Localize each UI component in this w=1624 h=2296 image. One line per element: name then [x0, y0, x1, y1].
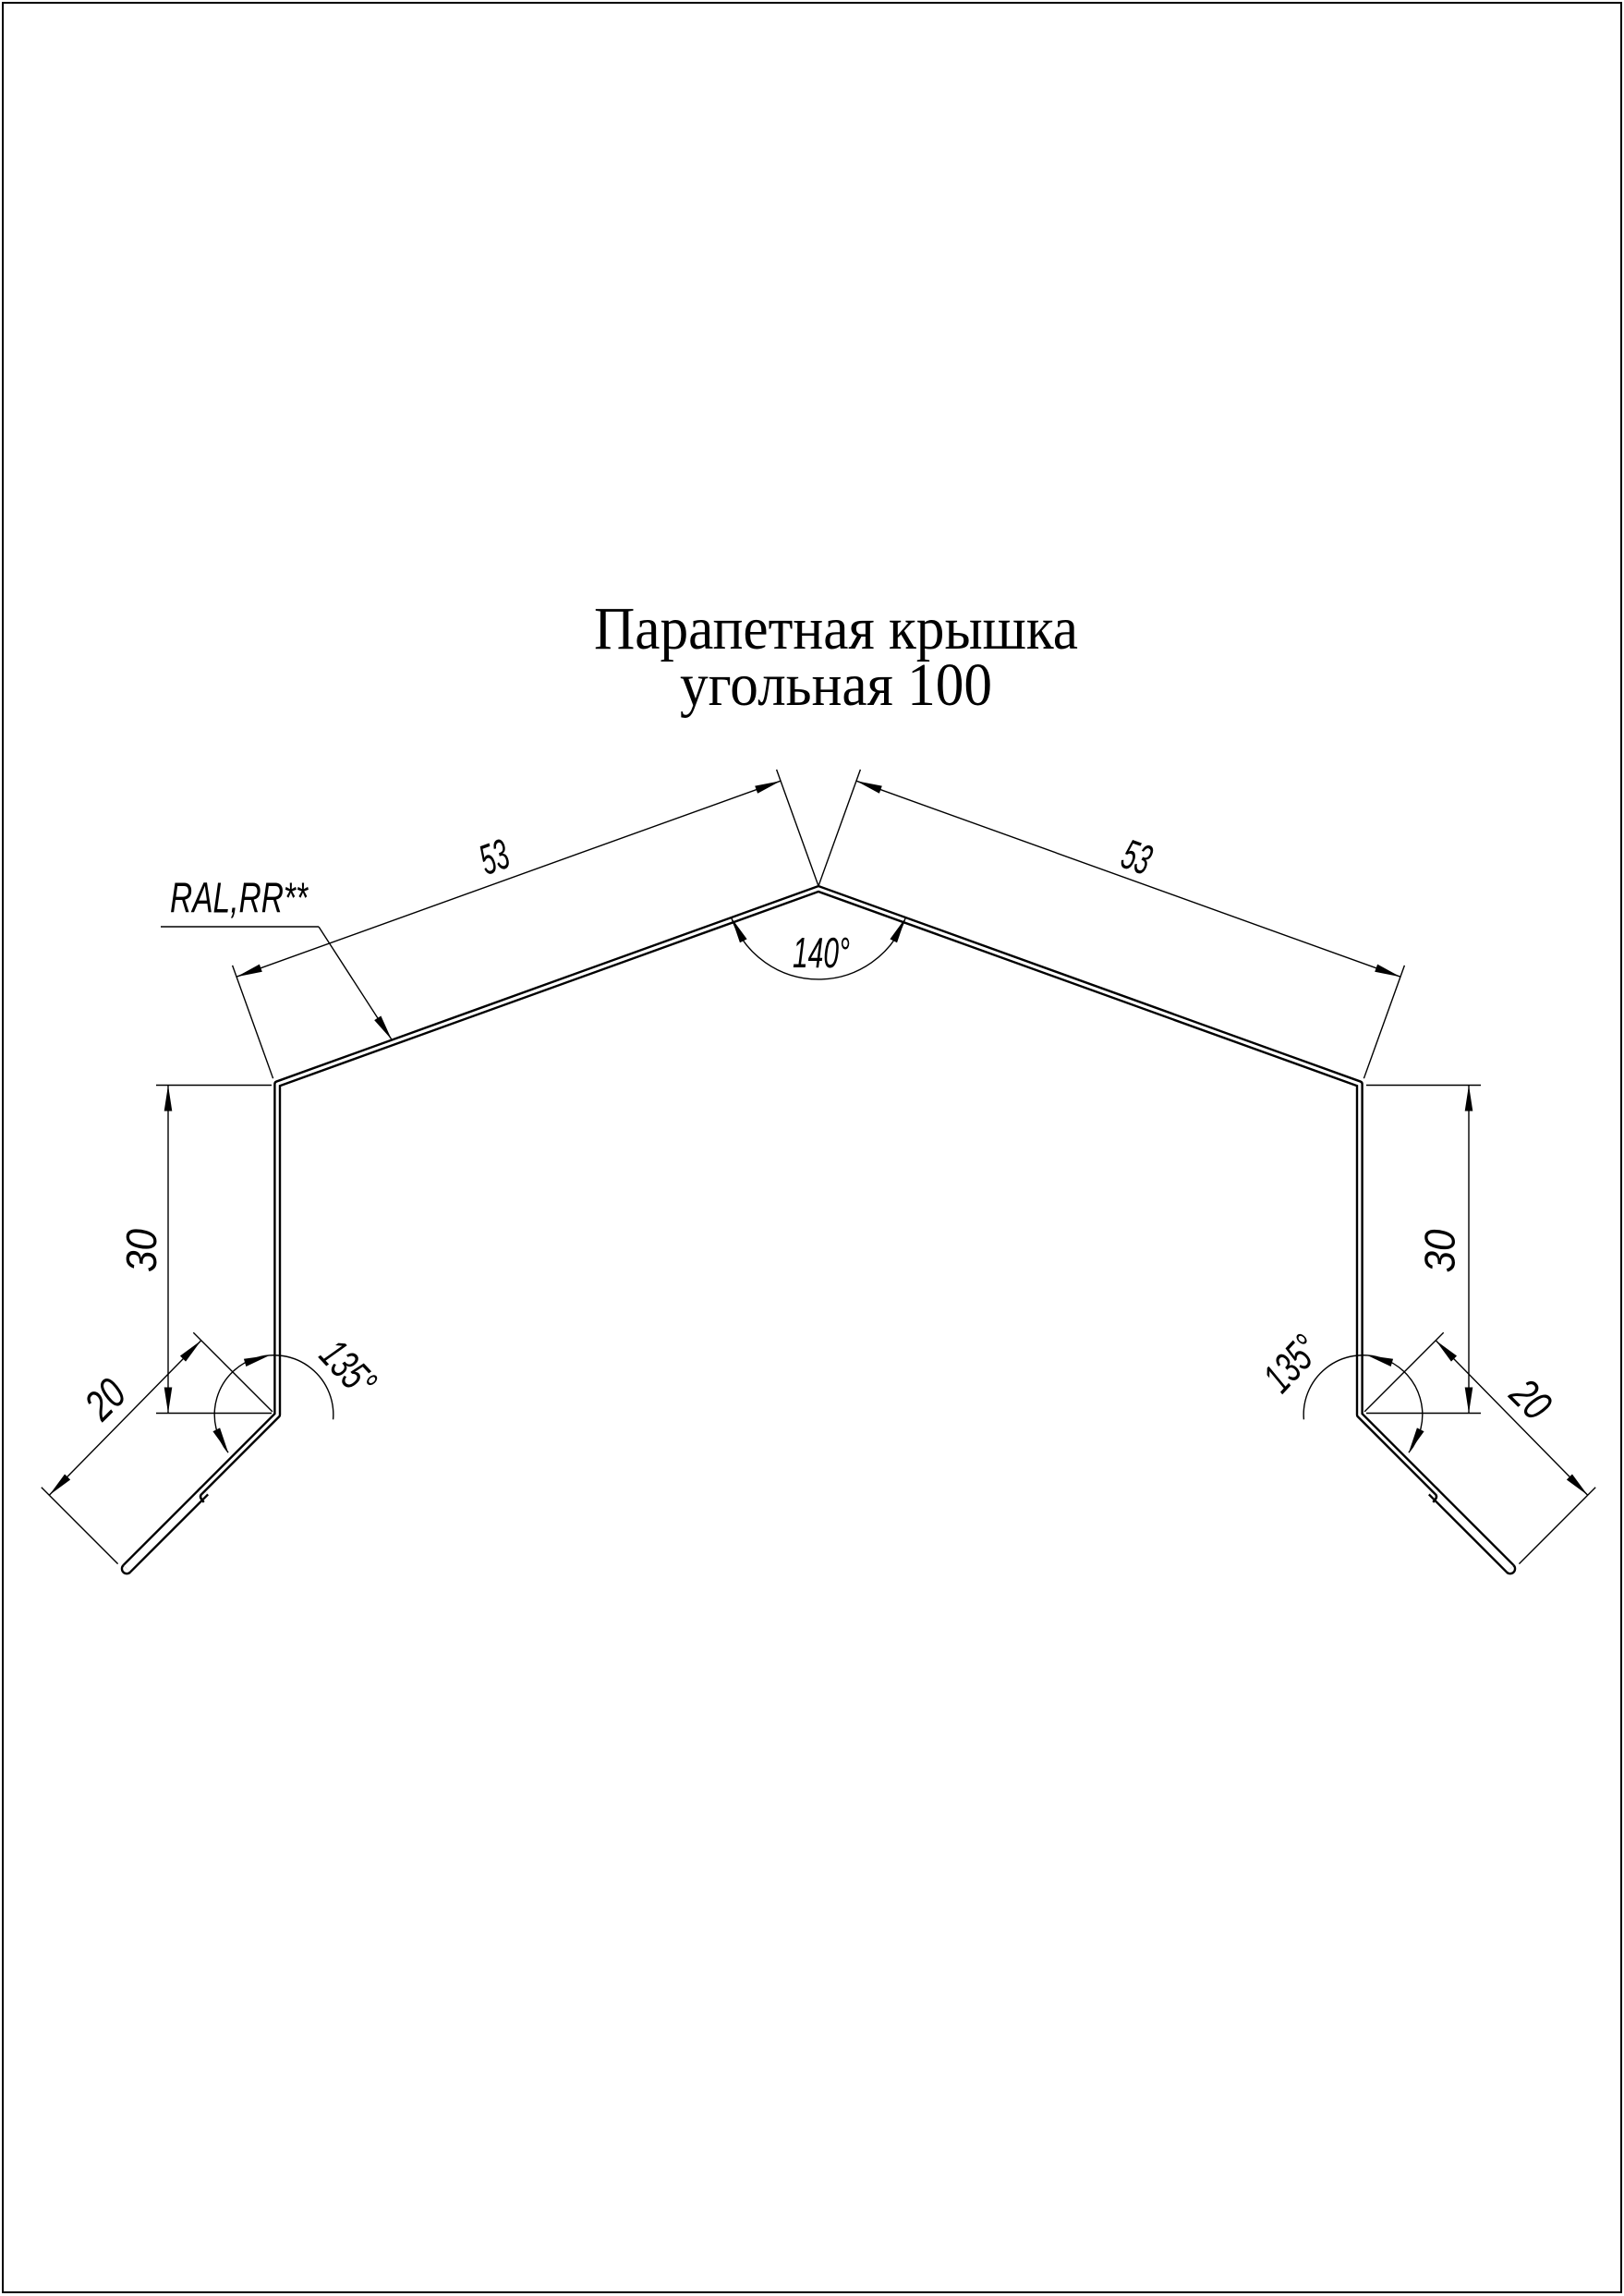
svg-text:30: 30 [117, 1229, 165, 1272]
svg-text:угольная 100: угольная 100 [680, 651, 992, 719]
svg-text:RAL,RR**: RAL,RR** [170, 874, 309, 922]
svg-text:30: 30 [1416, 1229, 1464, 1272]
svg-text:140°: 140° [793, 929, 850, 977]
